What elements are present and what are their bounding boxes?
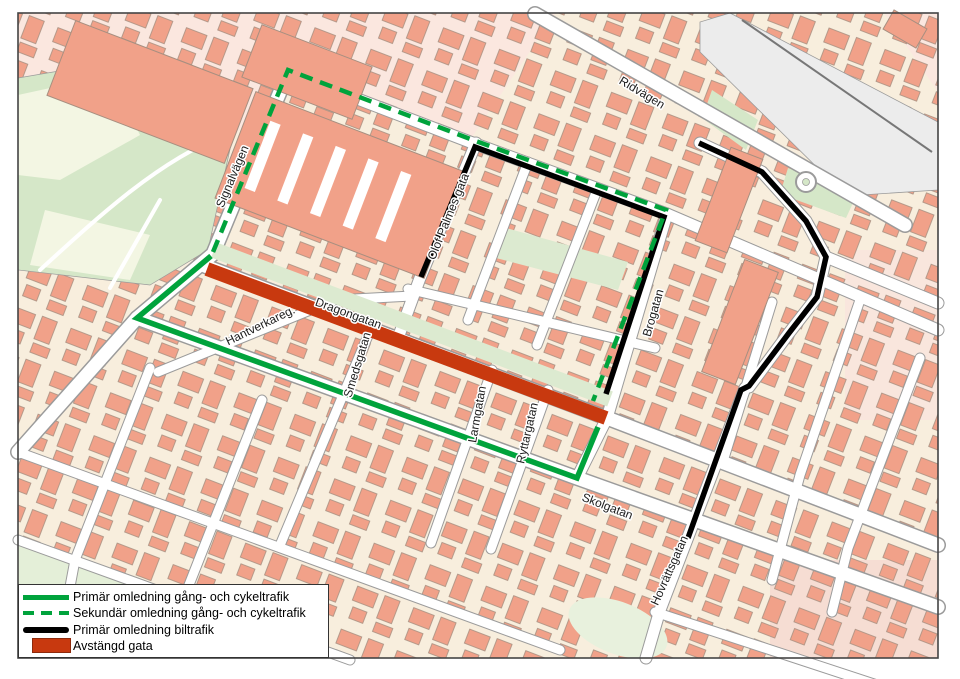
legend-item-closed-street: Avstängd gata [23,638,322,654]
legend-label: Avstängd gata [73,639,153,653]
map-canvas: RidvägenSignalvägenOlof Palmes gataDrago… [0,0,960,679]
legend-label: Sekundär omledning gång- och cykeltrafik [73,606,306,620]
red-area-swatch [32,638,71,653]
solid-black-line-swatch [23,627,69,633]
legend-item-secondary-bike: Sekundär omledning gång- och cykeltrafik [23,605,322,621]
solid-green-line-swatch [23,595,69,600]
map-legend: Primär omledning gång- och cykeltrafik S… [18,584,329,658]
legend-item-primary-car: Primär omledning biltrafik [23,622,322,638]
legend-label: Primär omledning gång- och cykeltrafik [73,590,289,604]
traffic-detour-map: RidvägenSignalvägenOlof Palmes gataDrago… [0,0,960,679]
legend-label: Primär omledning biltrafik [73,623,214,637]
legend-item-primary-bike: Primär omledning gång- och cykeltrafik [23,589,322,605]
dashed-green-line-swatch [23,611,69,615]
